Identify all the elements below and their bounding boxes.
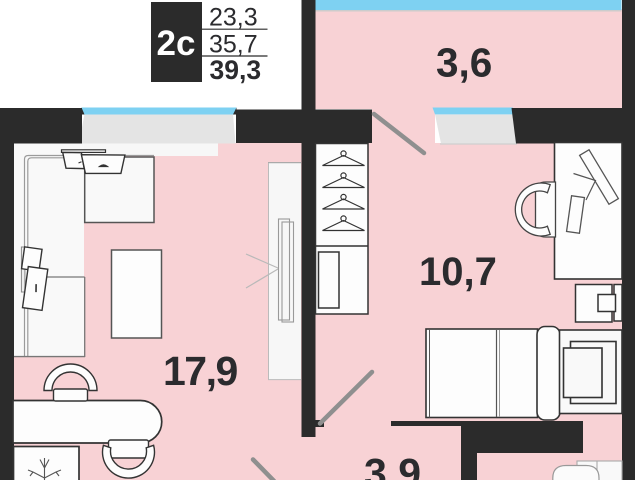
svg-text:3,6: 3,6 — [436, 40, 492, 86]
svg-text:10,7: 10,7 — [419, 250, 497, 294]
svg-text:2с: 2с — [157, 24, 196, 63]
svg-text:17,9: 17,9 — [163, 348, 237, 394]
svg-text:39,3: 39,3 — [210, 55, 262, 85]
svg-text:23,3: 23,3 — [209, 4, 258, 32]
svg-text:3,9: 3,9 — [364, 450, 421, 480]
